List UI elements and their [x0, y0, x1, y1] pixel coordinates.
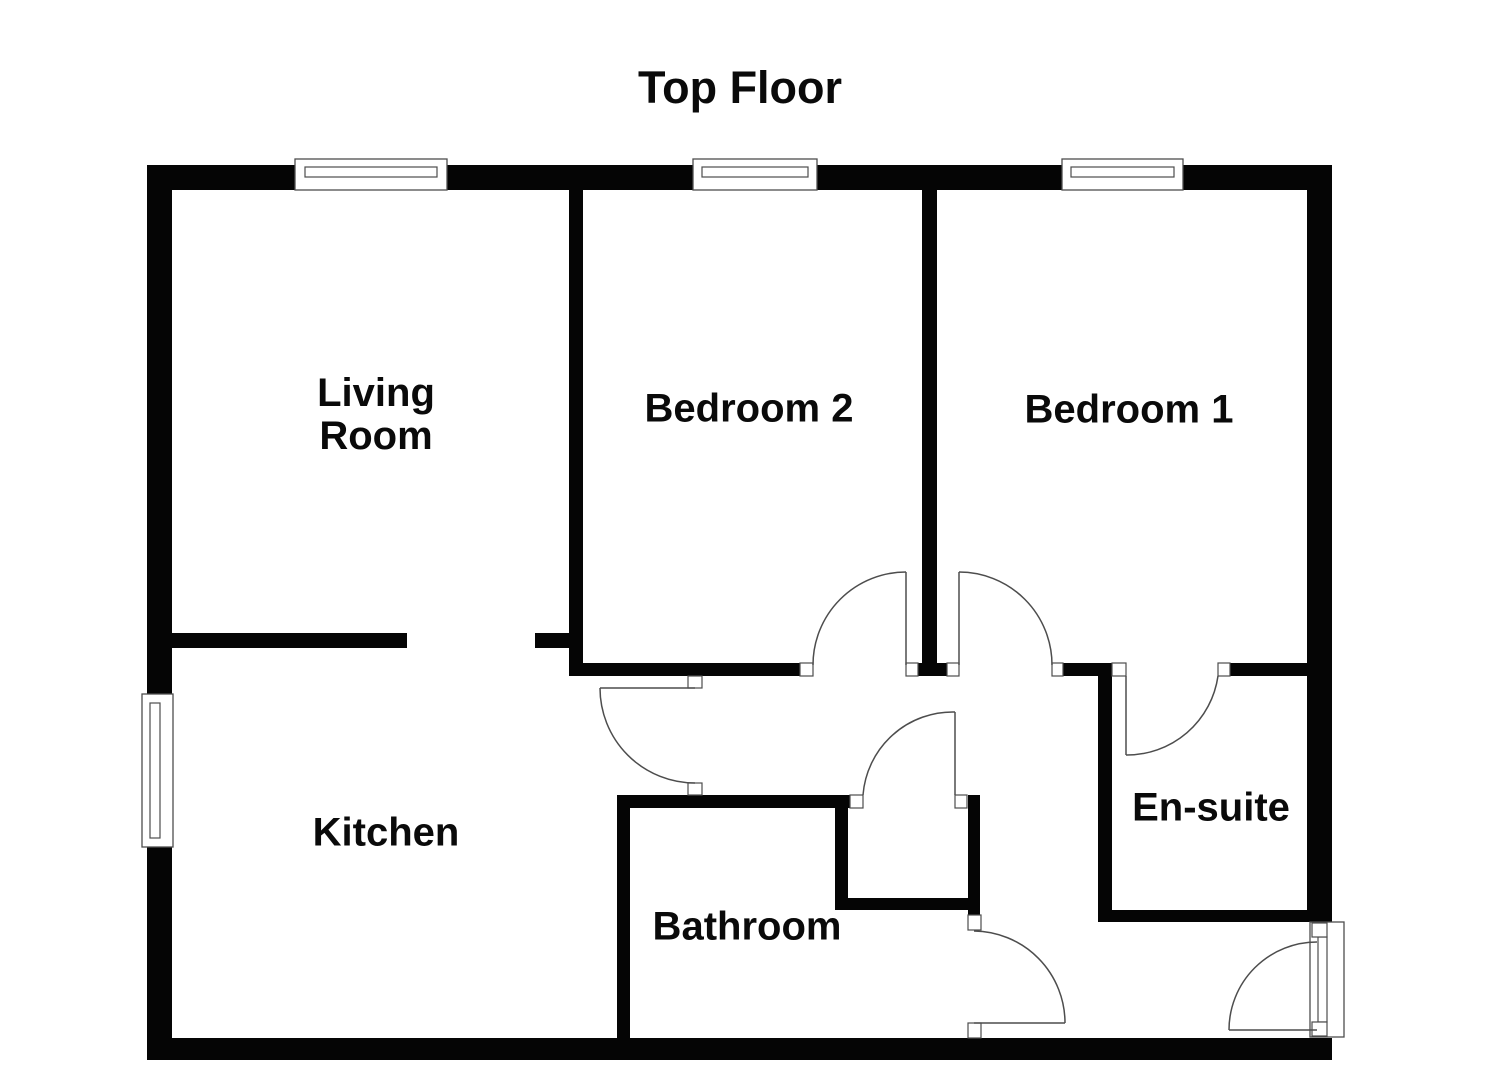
room-label-living-room: Living Room — [317, 372, 435, 458]
wall-bathroom-west — [617, 795, 630, 1038]
room-label-bedroom-2: Bedroom 2 — [645, 388, 854, 431]
entry-door-frame-glazing-bar — [1318, 937, 1327, 1022]
wall-bathroom-north — [617, 795, 850, 808]
room-label-kitchen: Kitchen — [313, 812, 460, 855]
window-kitchen-glazing-bar — [150, 703, 160, 838]
wall-living-kitchen — [172, 633, 407, 648]
door-jamb — [850, 795, 863, 808]
door-jamb — [1112, 663, 1126, 676]
window-living-room-glazing-bar — [305, 167, 437, 177]
wall-closet-south — [835, 898, 980, 910]
wall-bedroom2-south — [583, 663, 800, 676]
wall-hall-north — [1063, 663, 1098, 676]
door-jamb — [955, 795, 967, 808]
door-jamb — [1312, 1022, 1327, 1036]
window-bedroom1-glazing-bar — [1071, 167, 1174, 177]
room-label-en-suite: En-suite — [1132, 787, 1290, 830]
wall-closet-west — [835, 795, 848, 910]
wall-hall-ensuite — [1098, 663, 1112, 922]
wall-right-upper — [1307, 165, 1332, 922]
door-jamb — [947, 663, 959, 676]
floorplan: Top Floor Living Room Bedroom 2 Bedroom … — [0, 0, 1485, 1080]
wall-bedroom1-bedroom2 — [922, 190, 937, 663]
wall-closet-east — [968, 795, 980, 915]
door-jamb — [800, 663, 813, 676]
wall-living-bedroom2 — [569, 190, 583, 676]
door-jamb — [968, 915, 981, 930]
window-bedroom2-glazing-bar — [702, 167, 808, 177]
door-jamb — [688, 783, 702, 795]
door-jamb — [906, 663, 918, 676]
wall-bottom — [147, 1038, 1332, 1060]
door-jamb — [968, 1023, 981, 1038]
door-jamb — [1218, 663, 1230, 676]
plan-title: Top Floor — [638, 62, 842, 114]
door-jamb — [1312, 923, 1327, 937]
room-label-bedroom-1: Bedroom 1 — [1025, 389, 1234, 432]
wall-left — [147, 165, 172, 1060]
wall-bedroom-divider-foot — [918, 663, 947, 676]
wall-ensuite-south — [1098, 910, 1310, 922]
door-jamb — [1052, 663, 1063, 676]
door-jamb — [688, 676, 702, 688]
room-label-bathroom: Bathroom — [653, 906, 842, 949]
wall-bedroom1-ensuite — [1230, 663, 1307, 676]
